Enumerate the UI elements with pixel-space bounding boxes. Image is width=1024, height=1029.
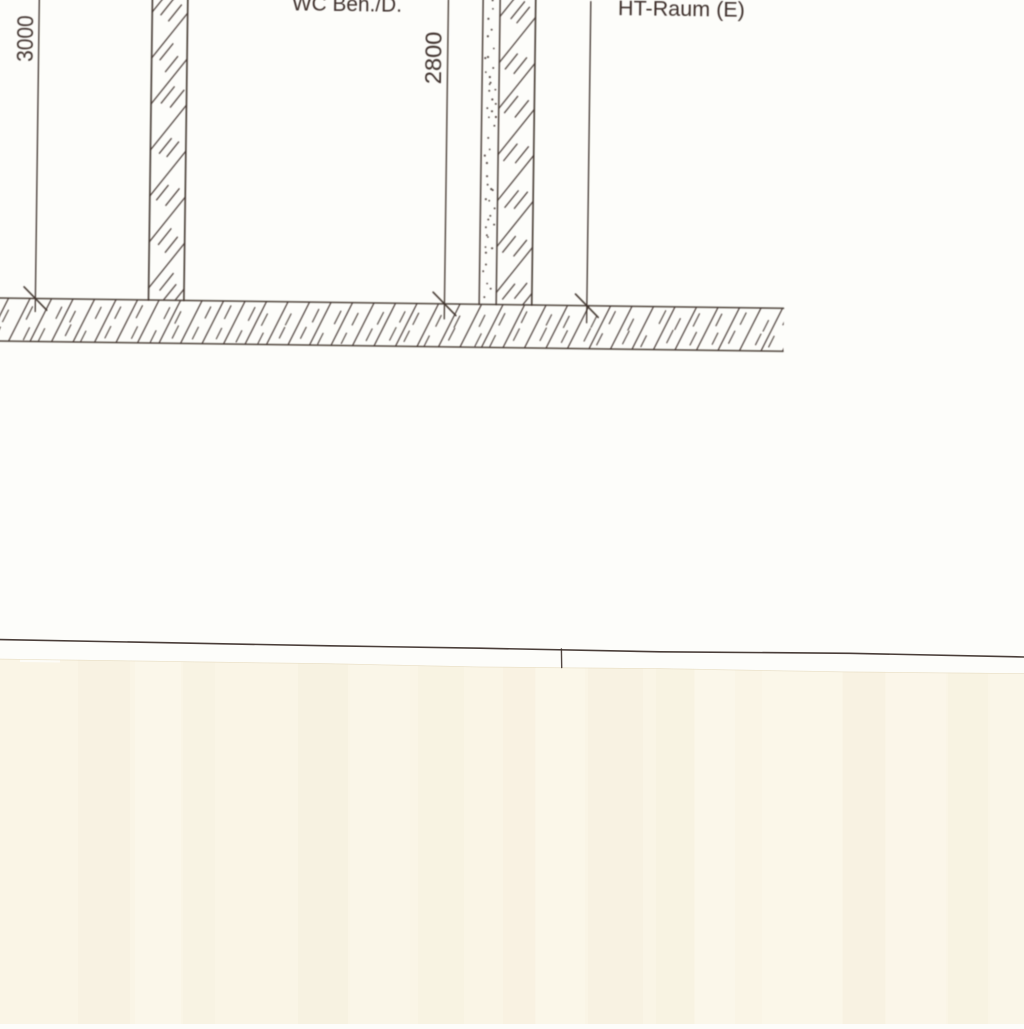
svg-text:WC Beh./D.: WC Beh./D. (292, 0, 402, 17)
svg-text:HT-Raum (E): HT-Raum (E) (618, 0, 745, 22)
svg-text:2800: 2800 (420, 32, 447, 85)
svg-text:3000: 3000 (12, 15, 39, 62)
